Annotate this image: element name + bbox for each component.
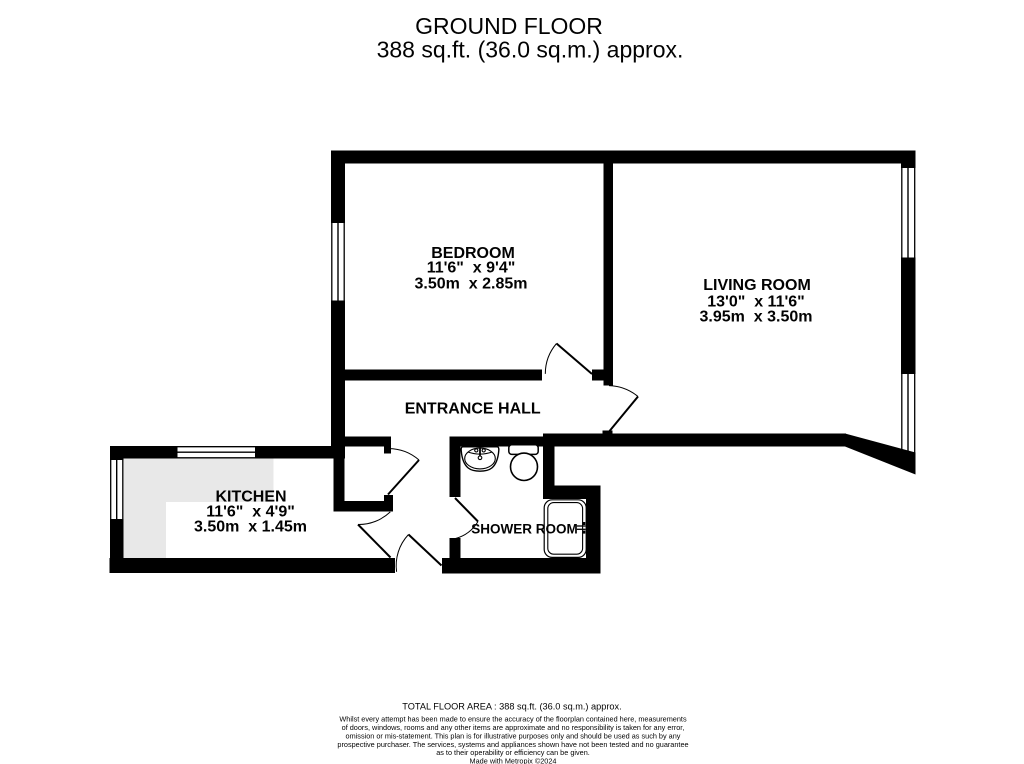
svg-text:SHOWER ROOM: SHOWER ROOM bbox=[471, 521, 578, 536]
svg-text:3.50m x 1.45m: 3.50m x 1.45m bbox=[194, 519, 307, 536]
svg-text:388 sq.ft. (36.0 sq.m.) approx: 388 sq.ft. (36.0 sq.m.) approx. bbox=[377, 37, 684, 63]
svg-text:LIVING ROOM: LIVING ROOM bbox=[703, 277, 811, 294]
svg-text:Made with Metropix ©2024: Made with Metropix ©2024 bbox=[470, 756, 557, 764]
svg-text:11'6" x 9'4": 11'6" x 9'4" bbox=[427, 259, 516, 276]
svg-text:TOTAL FLOOR AREA : 388 sq.ft.: TOTAL FLOOR AREA : 388 sq.ft. (36.0 sq.m… bbox=[402, 702, 621, 712]
svg-text:3.95m x 3.50m: 3.95m x 3.50m bbox=[700, 309, 813, 326]
svg-text:3.50m x 2.85m: 3.50m x 2.85m bbox=[415, 276, 528, 293]
svg-text:GROUND FLOOR: GROUND FLOOR bbox=[415, 13, 603, 39]
svg-text:ENTRANCE HALL: ENTRANCE HALL bbox=[405, 400, 541, 417]
